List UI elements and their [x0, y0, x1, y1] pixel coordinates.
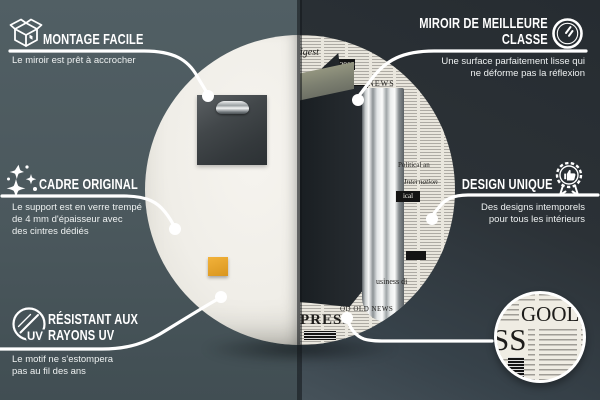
- title-text: MONTAGE FACILE: [43, 31, 144, 48]
- mirror-icon: [551, 17, 584, 50]
- title-text: CADRE ORIGINAL: [39, 176, 138, 193]
- detail-connector-line: [348, 320, 492, 341]
- title-text: RÉSISTANT AUX: [48, 311, 138, 328]
- callout-title-montage: MONTAGE FACILE: [43, 32, 144, 48]
- promo-infographic: digest 2019 NEWS Inter Political an Inte…: [0, 0, 600, 400]
- subtitle-text: de 4 mm d'épaisseur avec: [12, 214, 123, 225]
- sparkles-icon: [6, 163, 42, 199]
- callout-dot-press: [341, 312, 353, 324]
- award-icon: [553, 161, 585, 199]
- callout-title-cadre: CADRE ORIGINAL: [39, 177, 138, 193]
- subtitle-text: ne déforme pas la réflexion: [470, 68, 585, 79]
- title-text: CLASSE: [502, 31, 548, 48]
- subtitle-text: Le support est en verre trempé: [12, 202, 142, 213]
- callout-title-design: DESIGN UNIQUE: [462, 177, 553, 193]
- callout-dot-design: [426, 213, 438, 225]
- subtitle-text: Le motif ne s'estompera: [12, 354, 113, 365]
- box-icon: [9, 16, 43, 50]
- callout-dot-cadre: [169, 223, 181, 235]
- callout-title-uv: RÉSISTANT AUX RAYONS UV: [48, 312, 138, 343]
- callout-subtitle-miroir: Une surface parfaitement lisse qui ne dé…: [441, 56, 585, 80]
- subtitle-text: Une surface parfaitement lisse qui: [441, 56, 585, 67]
- svg-text:UV: UV: [27, 331, 43, 343]
- uv-icon: UV: [11, 306, 48, 344]
- callout-subtitle-uv: Le motif ne s'estompera pas au fil des a…: [12, 354, 113, 378]
- callout-title-miroir: MIROIR DE MEILLEURE CLASSE: [419, 16, 548, 47]
- subtitle-text: pas au fil des ans: [12, 366, 86, 377]
- callout-dot-montage: [202, 90, 214, 102]
- callout-subtitle-design: Des designs intemporels pour tous les in…: [481, 202, 585, 226]
- callout-dot-miroir: [352, 94, 364, 106]
- callout-subtitle-cadre: Le support est en verre trempé de 4 mm d…: [12, 202, 142, 238]
- subtitle-text: pour tous les intérieurs: [489, 214, 585, 225]
- callout-subtitle-montage: Le miroir est prêt à accrocher: [12, 55, 136, 67]
- subtitle-text: Des designs intemporels: [481, 202, 585, 213]
- title-text: MIROIR DE MEILLEURE: [419, 15, 548, 32]
- callout-dot-uv: [215, 291, 227, 303]
- title-text: RAYONS UV: [48, 327, 114, 344]
- subtitle-text: des cintres dédiés: [12, 226, 89, 237]
- subtitle-text: Le miroir est prêt à accrocher: [12, 55, 136, 66]
- title-text: DESIGN UNIQUE: [462, 176, 553, 193]
